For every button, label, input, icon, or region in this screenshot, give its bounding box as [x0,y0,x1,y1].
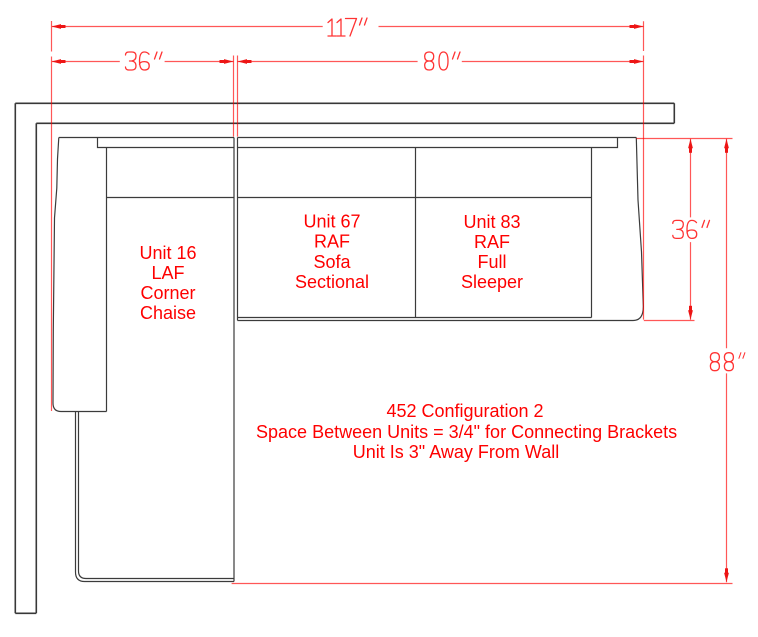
svg-text:Sleeper: Sleeper [461,272,523,292]
svg-text:Unit Is 3" Away From Wall: Unit Is 3" Away From Wall [353,442,559,462]
svg-text:Space Between Units = 3/4" for: Space Between Units = 3/4" for Connectin… [256,422,677,442]
svg-text:Full: Full [477,252,506,272]
svg-text:452 Configuration 2: 452 Configuration 2 [386,401,543,421]
svg-text:Chaise: Chaise [140,303,196,323]
svg-text:Corner: Corner [140,283,195,303]
svg-text:Unit 16: Unit 16 [139,243,196,263]
svg-text:RAF: RAF [314,232,350,252]
svg-text:Unit 83: Unit 83 [463,212,520,232]
svg-text:Sectional: Sectional [295,272,369,292]
svg-text:RAF: RAF [474,232,510,252]
svg-text:Sofa: Sofa [313,252,351,272]
svg-text:LAF: LAF [151,263,184,283]
svg-text:Unit 67: Unit 67 [303,212,360,232]
